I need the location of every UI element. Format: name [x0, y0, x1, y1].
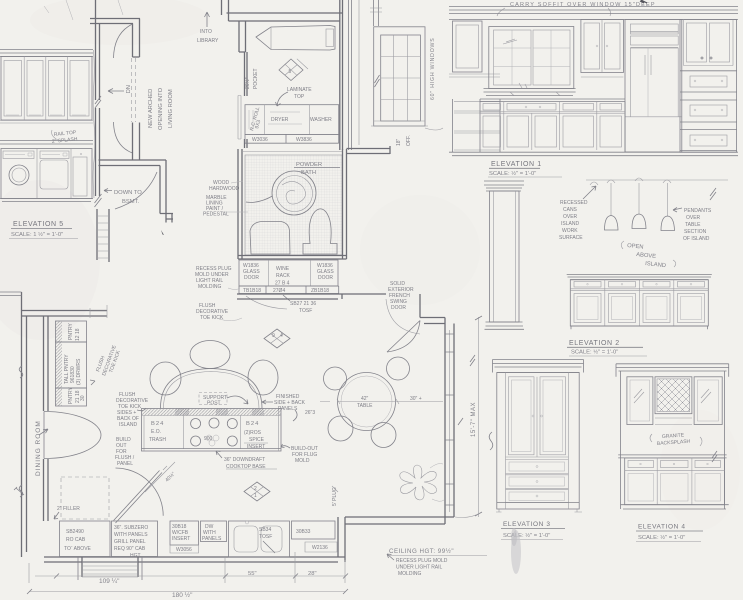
svg-text:DINING ROOM: DINING ROOM — [35, 420, 42, 476]
svg-text:SCALE: ½" = 1'-0": SCALE: ½" = 1'-0" — [638, 534, 685, 541]
svg-text:27Ø4: 27Ø4 — [273, 288, 285, 294]
svg-text:DOOR: DOOR — [391, 305, 406, 311]
svg-text:E.O.: E.O. — [151, 429, 161, 435]
svg-text:LAMINATE: LAMINATE — [287, 87, 312, 93]
svg-text:SB2490: SB2490 — [66, 529, 84, 535]
svg-text:W3836: W3836 — [296, 137, 312, 143]
svg-text:ISLAND: ISLAND — [561, 221, 579, 227]
svg-text:36". SUBZERO: 36". SUBZERO — [114, 525, 148, 531]
svg-text:ELEVATION 5: ELEVATION 5 — [13, 221, 64, 228]
svg-text:900: 900 — [204, 436, 213, 442]
svg-text:MOLDING: MOLDING — [198, 284, 221, 290]
svg-text:5: 5 — [289, 69, 292, 75]
svg-text:9: 9 — [272, 333, 275, 339]
svg-text:TOP: TOP — [294, 94, 305, 100]
svg-text:TOSF: TOSF — [259, 534, 272, 540]
svg-text:ELEVATION 1: ELEVATION 1 — [491, 161, 542, 168]
svg-text:SCALE: ½" = 1'-0": SCALE: ½" = 1'-0" — [489, 170, 536, 177]
svg-text:OVER: OVER — [686, 215, 701, 221]
svg-text:28": 28" — [308, 571, 317, 577]
svg-text:TABLE: TABLE — [685, 222, 701, 228]
svg-text:ELEVATION 2: ELEVATION 2 — [569, 340, 620, 347]
svg-text:TABLE: TABLE — [357, 403, 373, 409]
svg-text:42": 42" — [361, 396, 369, 402]
svg-text:MOLDING: MOLDING — [398, 571, 421, 577]
svg-text:UNDER LIGHT RAIL: UNDER LIGHT RAIL — [396, 565, 443, 571]
svg-text:30: 30 — [80, 395, 86, 401]
svg-text:PEDESTAL: PEDESTAL — [203, 212, 229, 218]
svg-text:POST: POST — [207, 401, 221, 407]
svg-text:INSERT: INSERT — [172, 536, 190, 542]
svg-text:4: 4 — [280, 333, 283, 339]
svg-text:PNTRY: PNTRY — [68, 322, 74, 340]
svg-text:WORK: WORK — [562, 228, 578, 234]
svg-text:36" DOWNDRAFT: 36" DOWNDRAFT — [224, 457, 265, 463]
svg-text:TRASH: TRASH — [149, 437, 166, 443]
svg-text:RO CAB: RO CAB — [66, 537, 86, 543]
svg-text:2" FILLER: 2" FILLER — [57, 506, 80, 512]
svg-text:SB34: SB34 — [259, 527, 271, 533]
svg-text:DOOR: DOOR — [318, 275, 333, 281]
svg-text:W3036: W3036 — [252, 137, 268, 143]
svg-text:SPICE: SPICE — [249, 437, 265, 443]
svg-text:PANEL: PANEL — [117, 461, 133, 467]
svg-text:PANELS: PANELS — [278, 406, 298, 412]
svg-text:55": 55" — [248, 571, 257, 577]
svg-text:NEW ARCHED: NEW ARCHED — [148, 89, 154, 128]
svg-text:26½": 26½" — [244, 77, 251, 89]
svg-text:WASHER: WASHER — [310, 117, 332, 123]
svg-text:HARDWOOD: HARDWOOD — [209, 186, 240, 192]
svg-text:PANELS: PANELS — [202, 536, 222, 542]
svg-text:CARRY SOFFIT OVER WINDOW 15"DE: CARRY SOFFIT OVER WINDOW 15"DEEP — [510, 2, 656, 8]
svg-text:(3) DRWRS: (3) DRWRS — [76, 358, 82, 385]
svg-text:TOE KICK: TOE KICK — [200, 315, 224, 321]
svg-text:OPENING INTO: OPENING INTO — [158, 87, 164, 130]
svg-text:1: 1 — [254, 493, 257, 499]
svg-text:5' PLUG: 5' PLUG — [332, 487, 338, 506]
svg-text:ZB1B18: ZB1B18 — [311, 288, 329, 294]
svg-text:GRILL PANEL: GRILL PANEL — [114, 539, 146, 545]
svg-text:PENDANTS: PENDANTS — [684, 208, 712, 214]
svg-text:SCALE: ½" = 1'-0": SCALE: ½" = 1'-0" — [571, 349, 618, 356]
svg-text:ELEVATION 4: ELEVATION 4 — [638, 524, 686, 531]
svg-text:INSERT: INSERT — [247, 444, 265, 450]
svg-text:CANS: CANS — [563, 207, 578, 213]
svg-text:109 ¼": 109 ¼" — [99, 578, 120, 585]
svg-text:SCALE: ½" = 1'-0": SCALE: ½" = 1'-0" — [503, 532, 550, 539]
svg-text:2: 2 — [254, 486, 257, 492]
svg-text:HGT.: HGT. — [130, 553, 141, 559]
svg-text:DOOR: DOOR — [244, 275, 259, 281]
svg-text:12 18: 12 18 — [75, 328, 81, 341]
svg-text:REQ 90" CAB: REQ 90" CAB — [114, 546, 146, 552]
svg-text:(2)ROS: (2)ROS — [244, 430, 262, 436]
svg-text:B24: B24 — [151, 421, 164, 427]
svg-text:B24: B24 — [246, 421, 259, 427]
svg-text:ELEVATION 3: ELEVATION 3 — [503, 521, 551, 528]
svg-text:W2136: W2136 — [312, 545, 328, 551]
svg-text:W3056: W3056 — [176, 547, 192, 553]
svg-text:RECESSED: RECESSED — [560, 200, 588, 206]
svg-text:PNTRY: PNTRY — [68, 386, 74, 404]
svg-text:LIBRARY: LIBRARY — [197, 38, 219, 44]
svg-text:60" HIGH WINDOWS: 60" HIGH WINDOWS — [430, 38, 436, 100]
svg-text:CEILING HGT: 99½": CEILING HGT: 99½" — [389, 548, 454, 555]
svg-text:OFF.: OFF. — [406, 135, 412, 146]
svg-text:DOWN TO: DOWN TO — [114, 190, 142, 196]
svg-text:SCALE: 1 ½" = 1'-0": SCALE: 1 ½" = 1'-0" — [11, 231, 63, 238]
svg-text:TOSF: TOSF — [299, 308, 312, 314]
svg-text:DRYER: DRYER — [271, 117, 289, 123]
svg-text:TB1B18: TB1B18 — [243, 288, 261, 294]
svg-text:RACK: RACK — [276, 273, 291, 279]
svg-text:30" +: 30" + — [410, 396, 422, 402]
svg-text:WINE: WINE — [276, 266, 290, 272]
svg-text:MOLD: MOLD — [295, 458, 310, 464]
svg-text:26"3: 26"3 — [305, 410, 315, 416]
svg-text:SURFACE: SURFACE — [559, 235, 583, 241]
svg-text:15'-7" MAX: 15'-7" MAX — [471, 402, 477, 437]
svg-text:DN: DN — [126, 85, 132, 93]
svg-text:SECTION: SECTION — [684, 229, 707, 235]
svg-text:SB27 21 36: SB27 21 36 — [290, 301, 316, 307]
svg-text:TOˉ ABOVE: TOˉ ABOVE — [64, 546, 92, 552]
svg-text:180 ½": 180 ½" — [172, 591, 193, 599]
svg-text:LIVING ROOM: LIVING ROOM — [168, 89, 174, 128]
svg-text:18": 18" — [396, 138, 402, 146]
svg-text:RECESS PLUG MOLD: RECESS PLUG MOLD — [396, 558, 448, 564]
svg-text:30B33: 30B33 — [296, 529, 311, 535]
svg-text:INTO: INTO — [200, 29, 212, 35]
svg-text:WITH PANELS: WITH PANELS — [114, 532, 148, 538]
svg-text:OF ISLAND: OF ISLAND — [683, 236, 710, 242]
svg-text:OVER: OVER — [563, 214, 578, 220]
svg-text:POCKET: POCKET — [253, 68, 259, 89]
svg-text:ISLAND: ISLAND — [119, 422, 137, 428]
